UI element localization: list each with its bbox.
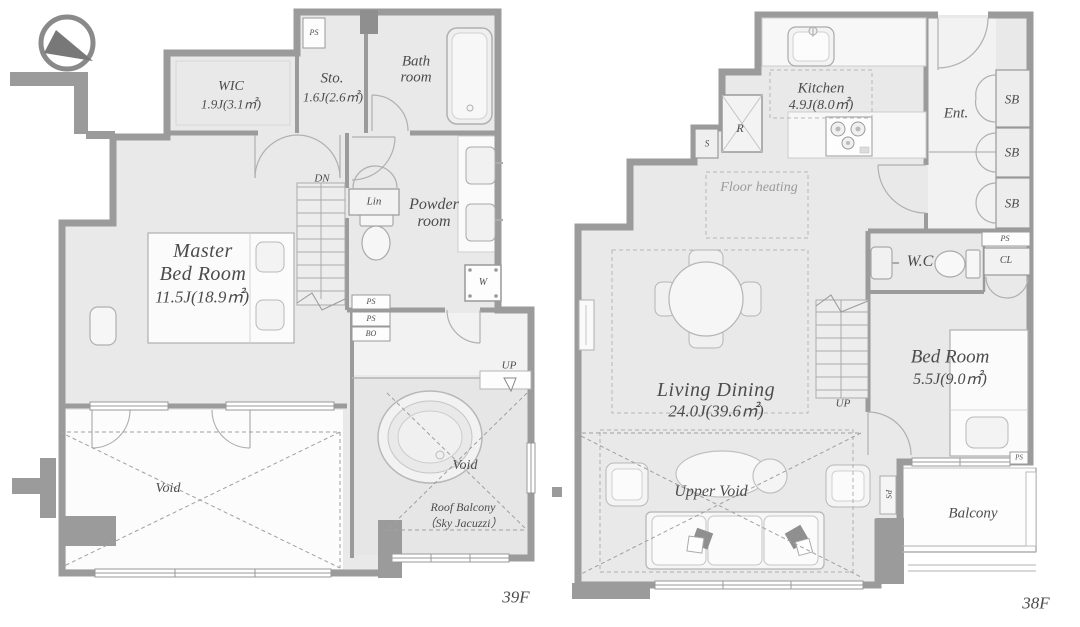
stairs-38f (816, 295, 868, 398)
floor-plan-39f (10, 10, 535, 578)
bo-label-shaft: BO (366, 330, 377, 338)
sb-label-3: SB (1005, 197, 1019, 210)
roof-balcony-label-2: （Sky Jacuzzi） (424, 517, 503, 529)
sto-name-label: Sto. (321, 72, 344, 87)
balcony-label: Balcony (948, 507, 997, 522)
toilet-tank-38f (966, 250, 980, 278)
sofa (646, 512, 824, 569)
compass-icon (41, 17, 93, 69)
wic-name-label: WIC (218, 80, 244, 94)
side-table-right (826, 465, 870, 507)
fridge-label: R (736, 122, 743, 134)
master-size-label: 11.5J(18.9㎡) (155, 289, 249, 306)
ps-label-bed: PS (1015, 455, 1023, 462)
cushion-light-1 (687, 536, 704, 553)
lin-label: Lin (367, 197, 382, 208)
powder-label-2: room (417, 214, 450, 230)
ps-label-balcony: PS (884, 490, 892, 499)
kitchen-sink (788, 27, 834, 66)
kitchen-size-label: 4.9J(8.0㎡) (789, 99, 854, 113)
floorplan-svg (0, 0, 1080, 627)
nightstand (90, 307, 116, 345)
powder-label-1: Powder (409, 197, 459, 213)
sb-label-1: SB (1005, 93, 1019, 106)
toilet-38f (935, 251, 965, 277)
bathroom-label-2: room (400, 71, 431, 86)
floor-plan-page: WIC 1.9J(3.1㎡) PS Sto. 1.6J(2.6㎡) Bath r… (0, 0, 1080, 627)
cushion-light-2 (795, 538, 812, 555)
ps-label-top: PS (310, 29, 319, 37)
void-label-39f: Void (156, 482, 181, 496)
sto-size-label: 1.6J(2.6㎡) (303, 91, 363, 104)
ps-label-shaft: PS (367, 315, 376, 323)
dining-table (669, 262, 743, 336)
west-window (579, 300, 594, 350)
kitchen-name-label: Kitchen (798, 82, 845, 97)
living-size-label: 24.0J(39.6㎡) (668, 403, 763, 420)
master-label-2: Bed Room (160, 264, 247, 284)
wc-label: W.C (907, 254, 934, 270)
dn-label: DN (314, 174, 329, 185)
roof-balcony-label-1: Roof Balcony (431, 501, 496, 513)
sb-label-2: SB (1005, 146, 1019, 159)
stove (826, 117, 872, 156)
upper-void-label: Upper Void (674, 484, 747, 500)
up-label-39f: UP (502, 361, 517, 372)
stairs-39f (297, 183, 345, 310)
lounge-chair (753, 459, 787, 493)
living-name-label: Living Dining (657, 380, 775, 400)
floor-label-39f: 39F (502, 589, 529, 606)
floor-label-38f: 38F (1022, 595, 1049, 612)
up-label-38f: UP (836, 399, 851, 410)
bedroom-size-label: 5.5J(9.0㎡) (913, 372, 987, 388)
master-label-1: Master (173, 241, 233, 261)
ps-label-powder: PS (367, 298, 376, 306)
roof-void-label: Void (453, 459, 478, 473)
wic-size-label: 1.9J(3.1㎡) (201, 98, 261, 111)
wc-sink (871, 247, 892, 279)
s-label: S (705, 140, 710, 149)
ps-label-closet: PS (1001, 235, 1010, 243)
entrance-label: Ent. (944, 107, 969, 122)
bedroom-name-label: Bed Room (911, 348, 990, 367)
floor-heating-label: Floor heating (720, 181, 797, 195)
cl-label: CL (1000, 256, 1012, 266)
kitchen-counter-top (762, 18, 926, 66)
bathroom-label-1: Bath (402, 55, 430, 70)
bathtub (447, 28, 492, 124)
side-table-left (606, 463, 648, 506)
toilet-39f (360, 213, 393, 260)
washer-label: W (479, 278, 487, 288)
